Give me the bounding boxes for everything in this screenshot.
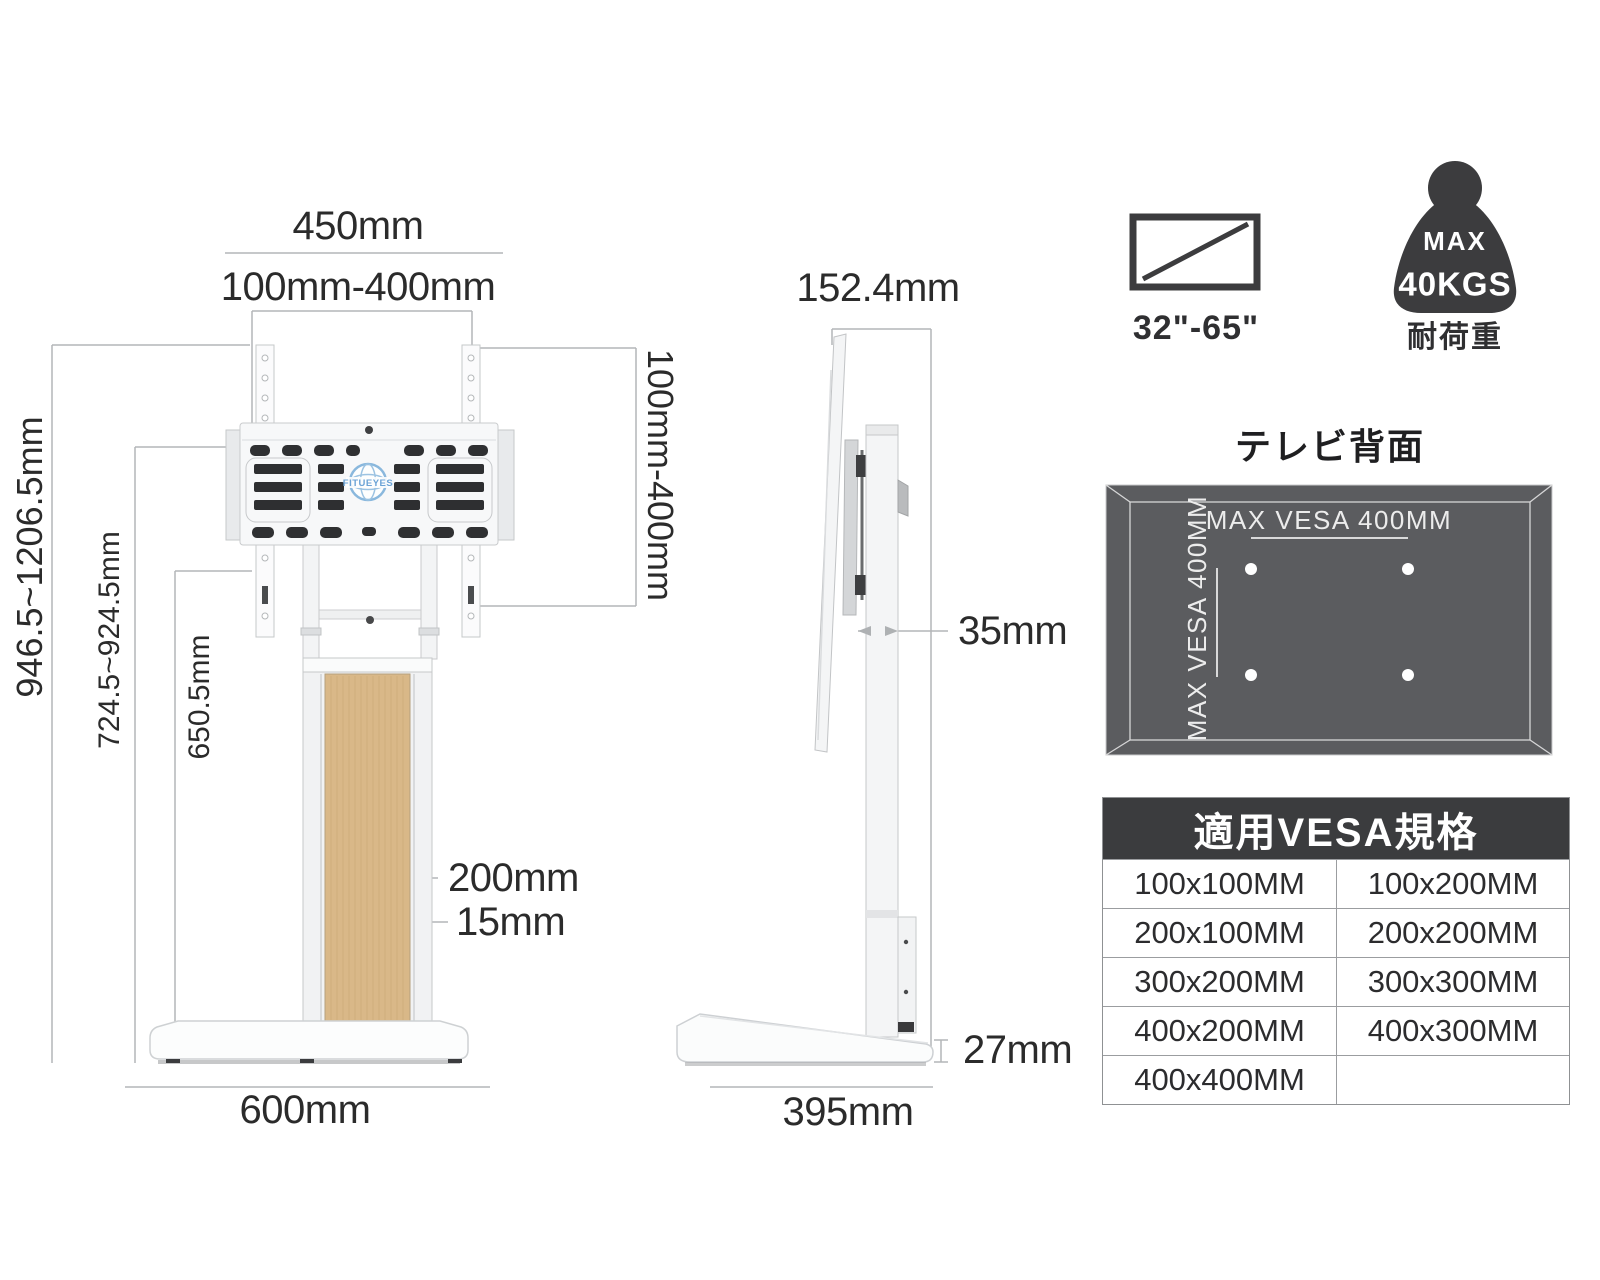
dim-label-column-height: 650.5mm: [185, 634, 215, 759]
dim-label-frame-edge: 15mm: [456, 902, 565, 942]
dim-label-base-width: 600mm: [240, 1090, 371, 1130]
table-row: 400x200MM 400x300MM: [1103, 1006, 1569, 1055]
screen-size-label: 32"-65": [1133, 311, 1259, 345]
vesa-table-title: 適用VESA規格: [1103, 798, 1569, 859]
dim-label-bracket-width: 450mm: [293, 206, 424, 246]
table-row: 300x200MM 300x300MM: [1103, 957, 1569, 1006]
product-spec-sheet: FITUEYES: [0, 0, 1600, 1280]
vesa-size-cell: [1336, 1056, 1569, 1104]
vesa-size-cell: 400x300MM: [1336, 1007, 1569, 1055]
table-row: 100x100MM 100x200MM: [1103, 859, 1569, 908]
vesa-size-cell: 300x200MM: [1103, 958, 1336, 1006]
front-mount-bracket: FITUEYES: [226, 423, 514, 545]
table-row: 200x100MM 200x200MM: [1103, 908, 1569, 957]
dim-label-vesa-width-range: 100mm-400mm: [221, 267, 496, 307]
vesa-size-cell: 400x400MM: [1103, 1056, 1336, 1104]
front-view-stand: [150, 545, 468, 1063]
dim-label-top-depth: 152.4mm: [796, 268, 959, 308]
side-view-stand: [677, 334, 933, 1064]
screen-size-icon: [1133, 217, 1257, 287]
dim-label-pole-depth: 35mm: [958, 611, 1067, 651]
fitueyes-logo-text: FITUEYES: [343, 478, 393, 489]
vesa-size-cell: 200x200MM: [1336, 909, 1569, 957]
vesa-size-cell: 300x300MM: [1336, 958, 1569, 1006]
vesa-size-cell: 200x100MM: [1103, 909, 1336, 957]
dim-label-vesa-height-range: 100mm-400mm: [642, 349, 678, 601]
dim-label-base-thickness: 27mm: [963, 1030, 1072, 1070]
max-weight-max-label: MAX: [1423, 228, 1487, 254]
dim-label-base-depth: 395mm: [783, 1092, 914, 1132]
dim-label-mid-height-range: 724.5~924.5mm: [95, 531, 125, 749]
tv-back-title: テレビ背面: [1235, 429, 1425, 465]
load-capacity-caption: 耐荷重: [1407, 323, 1503, 353]
tv-back-max-vesa-horizontal: MAX VESA 400MM: [1206, 507, 1452, 533]
vesa-size-cell: 400x200MM: [1103, 1007, 1336, 1055]
vesa-compatibility-table: 適用VESA規格 100x100MM 100x200MM 200x100MM 2…: [1102, 797, 1570, 1105]
vesa-size-cell: 100x200MM: [1336, 860, 1569, 908]
table-row: 400x400MM: [1103, 1055, 1569, 1104]
tv-back-max-vesa-vertical: MAX VESA 400MM: [1184, 495, 1210, 741]
max-weight-value: 40KGS: [1398, 268, 1511, 301]
vesa-size-cell: 100x100MM: [1103, 860, 1336, 908]
dim-label-total-height-range: 946.5~1206.5mm: [12, 416, 48, 697]
dim-label-column-width: 200mm: [448, 858, 579, 898]
